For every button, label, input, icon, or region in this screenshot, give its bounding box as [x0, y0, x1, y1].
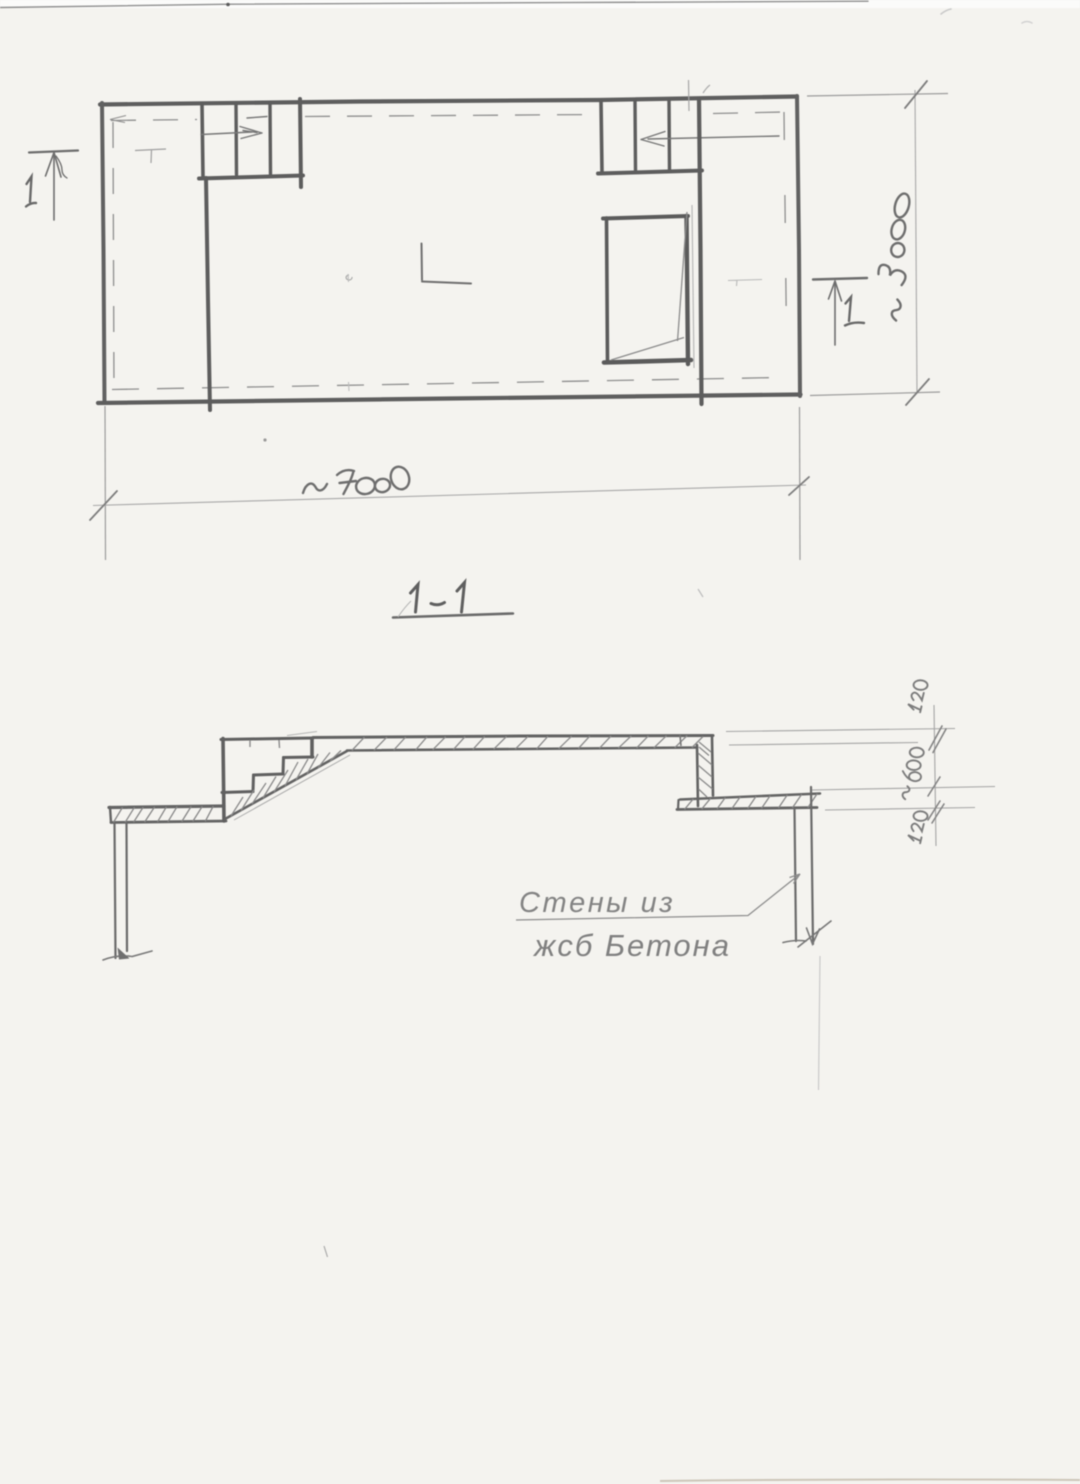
svg-text:жсб Бетона: жсб Бетона	[532, 928, 731, 963]
svg-text:Стены из: Стены из	[519, 887, 675, 919]
